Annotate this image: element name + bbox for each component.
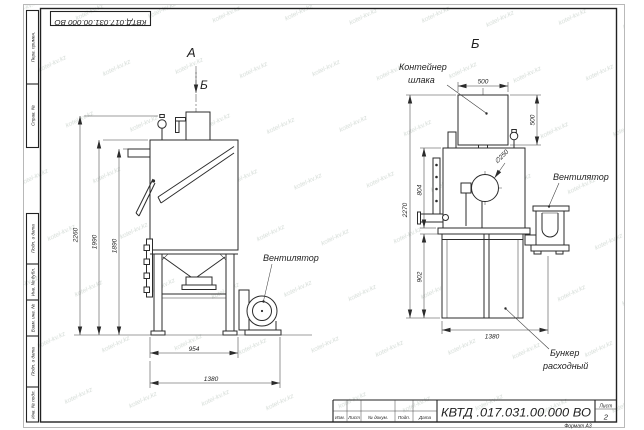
stamp-podp-data-2: Подп. и дата xyxy=(30,347,35,376)
top-stamp-doc-number: КВТД.017.031.00.000 ВО xyxy=(54,18,146,27)
stamp-sprav-n: Справ. № xyxy=(30,105,35,126)
stamp-inv-dubl: Инв. № дубл. xyxy=(30,268,35,296)
format-label: Формат А3 xyxy=(564,423,592,429)
dim-1380-front: 1380 xyxy=(204,376,219,383)
chimney xyxy=(186,112,210,140)
dim-902: 902 xyxy=(417,271,424,282)
col-izm: Изм. xyxy=(335,415,345,420)
stamp-vzam-inv: Взам. инв. № xyxy=(30,304,35,332)
dim-1380-side: 1380 xyxy=(485,334,500,341)
col-list: Лист xyxy=(347,415,360,420)
door-ledge xyxy=(128,149,150,157)
feed-hopper xyxy=(442,234,523,318)
fan-label-side: Вентилятор xyxy=(553,172,609,182)
sheet-number: 2 xyxy=(603,413,609,422)
col-ndokum: № докум. xyxy=(368,415,388,420)
doc-number: КВТД .017.031.00.000 ВО xyxy=(441,406,591,420)
sheet-label: Лист xyxy=(598,404,612,410)
furnace-body xyxy=(150,140,238,250)
dim-1990: 1990 xyxy=(92,234,99,249)
side-hinge-strip xyxy=(433,158,440,214)
side-view-title: Б xyxy=(471,36,480,51)
stamp-podp-data-1: Подп. и дата xyxy=(30,224,35,253)
dim-500-h: 500 xyxy=(530,114,537,125)
dim-1890: 1890 xyxy=(112,238,119,253)
front-view-label-a: А xyxy=(186,45,196,60)
hopper-label-2: расходный xyxy=(542,361,588,371)
stamp-perv-primen: Перв. примен. xyxy=(30,32,35,63)
dim-2260: 2260 xyxy=(73,227,80,243)
dim-2270: 2270 xyxy=(402,202,409,218)
chimney-stub xyxy=(448,132,456,148)
dim-954: 954 xyxy=(189,346,200,353)
col-data: Дата xyxy=(418,415,432,420)
engineering-drawing: kotel-kv.kz kotel-kv.kz КВТД.017.031.00.… xyxy=(0,0,644,430)
container-label-2: шлака xyxy=(408,75,435,85)
stamp-inv-podl: Инв. № подл. xyxy=(30,390,35,419)
watermark-layer xyxy=(23,5,624,427)
slag-container xyxy=(458,95,508,145)
col-podp: Подп. xyxy=(398,415,410,420)
drawing-sheet: kotel-kv.kz kotel-kv.kz КВТД.017.031.00.… xyxy=(0,0,644,430)
body-base-plate xyxy=(438,228,530,234)
dim-804: 804 xyxy=(417,184,424,195)
fan-label-front: Вентилятор xyxy=(263,253,319,263)
hopper-label-1: Бункер xyxy=(550,348,579,358)
container-label-1: Контейнер xyxy=(399,62,447,72)
dim-500-w: 500 xyxy=(478,79,489,86)
front-view-label-b: Б xyxy=(200,78,208,92)
